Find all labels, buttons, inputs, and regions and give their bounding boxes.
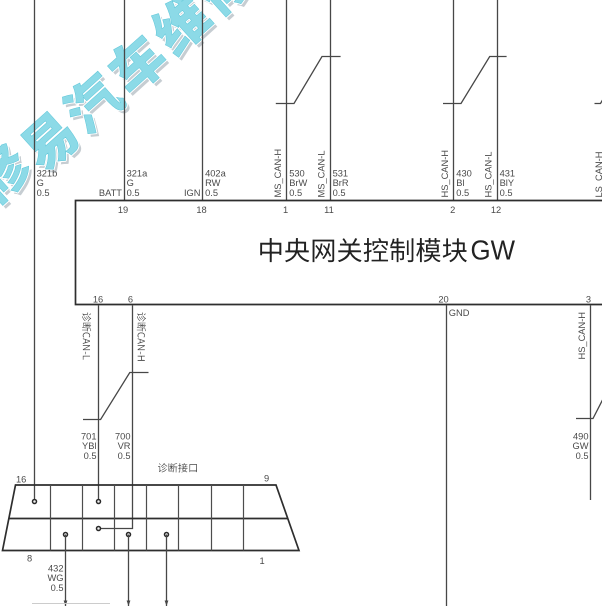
svg-text:321a: 321a	[127, 168, 149, 178]
svg-text:490: 490	[573, 432, 589, 442]
svg-text:HS_CAN-H: HS_CAN-H	[440, 150, 450, 198]
svg-text:18: 18	[196, 205, 206, 215]
svg-text:0.5: 0.5	[500, 188, 513, 198]
svg-text:0.5: 0.5	[456, 188, 469, 198]
svg-text:G: G	[37, 178, 44, 188]
svg-text:530: 530	[289, 168, 305, 178]
svg-text:431: 431	[500, 168, 516, 178]
svg-text:16: 16	[16, 475, 26, 485]
svg-text:700: 700	[115, 432, 131, 442]
svg-text:VR: VR	[118, 441, 131, 451]
svg-text:3: 3	[586, 295, 591, 305]
svg-text:BlY: BlY	[500, 178, 514, 188]
svg-text:MS_CAN-L: MS_CAN-L	[316, 150, 326, 197]
svg-text:BATT: BATT	[99, 188, 122, 198]
svg-text:12: 12	[491, 205, 501, 215]
svg-text:YBl: YBl	[82, 441, 96, 451]
svg-text:321b: 321b	[37, 168, 58, 178]
svg-text:GW: GW	[572, 441, 588, 451]
svg-text:WG: WG	[47, 573, 63, 583]
svg-text:BrW: BrW	[289, 178, 307, 188]
svg-text:BrR: BrR	[333, 178, 349, 188]
svg-text:0.5: 0.5	[333, 188, 346, 198]
svg-text:430: 430	[456, 168, 472, 178]
svg-text:19: 19	[118, 205, 128, 215]
svg-text:402a: 402a	[205, 168, 227, 178]
svg-text:1: 1	[260, 556, 265, 566]
svg-text:GW: GW	[471, 235, 516, 266]
svg-text:HS_CAN-L: HS_CAN-L	[483, 152, 493, 198]
svg-text:16: 16	[93, 295, 103, 305]
svg-text:2: 2	[450, 205, 455, 215]
svg-text:LS_CAN-H: LS_CAN-H	[594, 152, 602, 198]
svg-text:MS_CAN-H: MS_CAN-H	[273, 149, 283, 198]
svg-text:432: 432	[48, 564, 64, 574]
svg-text:0.5: 0.5	[37, 188, 50, 198]
svg-text:20: 20	[438, 295, 448, 305]
svg-text:0.5: 0.5	[84, 451, 97, 461]
svg-text:0.5: 0.5	[51, 583, 64, 593]
svg-text:0.5: 0.5	[118, 451, 131, 461]
svg-text:GND: GND	[449, 308, 470, 318]
svg-text:G: G	[127, 178, 134, 188]
svg-text:1: 1	[283, 205, 288, 215]
svg-text:531: 531	[333, 168, 349, 178]
svg-text:9: 9	[264, 474, 269, 484]
svg-text:RW: RW	[205, 178, 221, 188]
svg-text:Bl: Bl	[456, 178, 464, 188]
svg-text:6: 6	[128, 295, 133, 305]
svg-text:0.5: 0.5	[127, 188, 140, 198]
svg-text:0.5: 0.5	[576, 451, 589, 461]
svg-text:0.5: 0.5	[289, 188, 302, 198]
svg-text:8: 8	[27, 554, 32, 564]
svg-text:701: 701	[81, 432, 97, 442]
svg-text:0.5: 0.5	[205, 188, 218, 198]
svg-text:11: 11	[324, 205, 334, 215]
svg-text:HS_CAN-H: HS_CAN-H	[577, 312, 587, 360]
svg-text:IGN: IGN	[184, 188, 201, 198]
